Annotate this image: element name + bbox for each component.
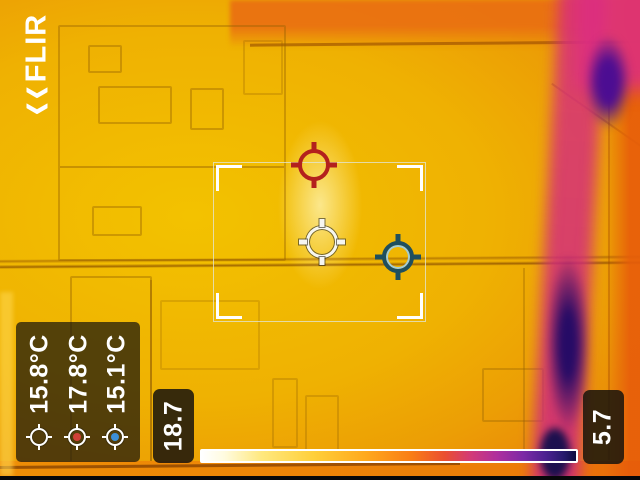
flir-logo: FLIR xyxy=(21,14,54,114)
door-inset xyxy=(190,88,224,130)
flir-camera-screen: FLIR 15.8°C 17.8°C 15.1°C xyxy=(0,0,640,480)
crosshair-tick xyxy=(312,180,317,188)
area-corner-bracket xyxy=(397,165,423,191)
marker-tick xyxy=(114,446,116,450)
crosshair-tick xyxy=(291,163,299,168)
marker-dot xyxy=(73,433,81,441)
blue-crosshair-ring xyxy=(382,241,414,273)
red-crosshair[interactable] xyxy=(295,146,333,184)
white-crosshair-ring xyxy=(306,226,338,258)
frame-line xyxy=(523,268,525,462)
marker-tick xyxy=(86,436,90,438)
flir-wordmark: FLIR xyxy=(21,14,54,82)
white-crosshair[interactable] xyxy=(303,223,341,261)
marker-tick xyxy=(48,436,52,438)
flir-chevron-icon xyxy=(27,103,48,114)
red-spot-marker-icon xyxy=(68,428,86,446)
marker-tick xyxy=(114,424,116,428)
marker-tick xyxy=(38,446,40,450)
spot3-temperature: 15.1°C xyxy=(103,334,132,414)
marker-tick xyxy=(64,436,68,438)
crosshair-tick xyxy=(312,142,317,150)
crosshair-tick xyxy=(320,257,325,265)
red-crosshair-ring xyxy=(298,149,330,181)
crosshair-tick xyxy=(396,272,401,280)
marker-tick xyxy=(38,424,40,428)
door-inset xyxy=(92,206,142,236)
marker-tick xyxy=(102,436,106,438)
marker-dot xyxy=(111,433,119,441)
crosshair-tick xyxy=(329,163,337,168)
white-spot-marker-icon xyxy=(30,428,48,446)
scale-max-box: 18.7 xyxy=(153,389,194,463)
area-corner-bracket xyxy=(216,293,242,319)
door-inset xyxy=(98,86,172,124)
crosshair-tick xyxy=(396,234,401,242)
flir-chevron-icon xyxy=(27,87,48,98)
door-inset xyxy=(243,40,283,95)
bottom-black-edge xyxy=(0,476,640,480)
scale-min-box: 5.7 xyxy=(583,390,624,464)
frame-line xyxy=(150,280,152,465)
crosshair-tick xyxy=(337,240,345,245)
door-inset xyxy=(88,45,122,73)
floor-groove xyxy=(0,462,460,469)
blue-crosshair[interactable] xyxy=(379,238,417,276)
crosshair-tick xyxy=(375,255,383,260)
cold-blob-top xyxy=(585,35,631,130)
temperature-scale-bar[interactable] xyxy=(200,449,578,463)
spot2-temperature: 17.8°C xyxy=(65,334,94,414)
crosshair-tick xyxy=(299,240,307,245)
blue-spot-marker-icon xyxy=(106,428,124,446)
crosshair-tick xyxy=(320,219,325,227)
left-warm-strip xyxy=(0,292,13,476)
marker-dot xyxy=(35,433,43,441)
marker-tick xyxy=(124,436,128,438)
lower-detail xyxy=(305,395,339,453)
area-corner-bracket xyxy=(216,165,242,191)
lower-detail xyxy=(272,378,298,448)
marker-tick xyxy=(76,424,78,428)
marker-tick xyxy=(76,446,78,450)
area-corner-bracket xyxy=(397,293,423,319)
crosshair-tick xyxy=(413,255,421,260)
marker-tick xyxy=(26,436,30,438)
scale-max-value: 18.7 xyxy=(160,401,189,452)
scale-min-value: 5.7 xyxy=(589,409,618,445)
spot1-temperature: 15.8°C xyxy=(26,334,55,414)
